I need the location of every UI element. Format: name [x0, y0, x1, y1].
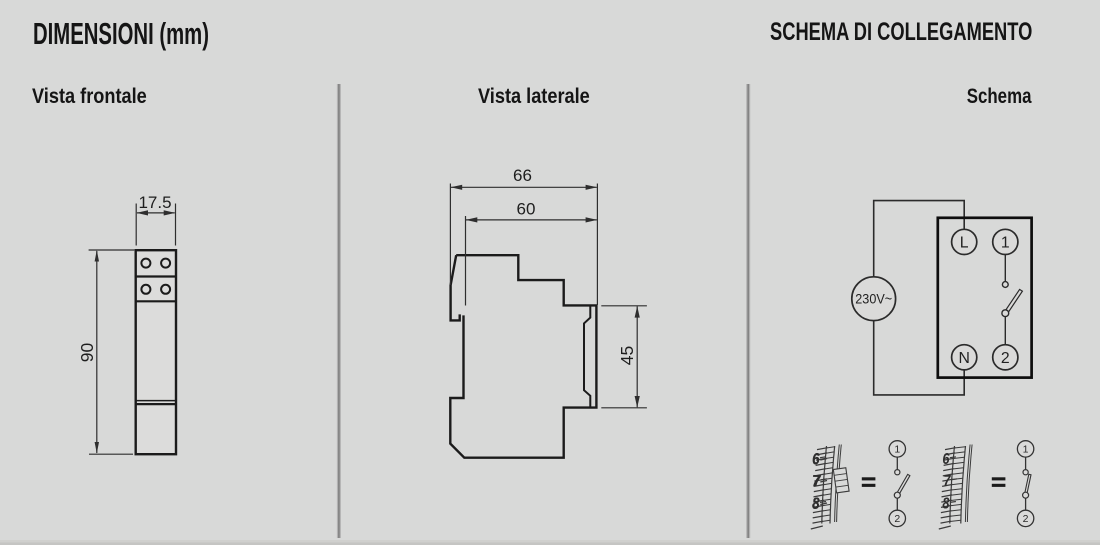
svg-text:2: 2 — [1023, 513, 1029, 525]
svg-text:1: 1 — [894, 444, 900, 456]
svg-text:7: 7 — [943, 473, 951, 490]
svg-text:1: 1 — [1023, 444, 1029, 456]
svg-text:2: 2 — [894, 513, 900, 525]
svg-text:1: 1 — [1001, 235, 1010, 252]
svg-text:60: 60 — [517, 200, 536, 219]
svg-text:N: N — [958, 350, 969, 367]
svg-text:8: 8 — [942, 495, 949, 512]
svg-text:66: 66 — [513, 166, 532, 185]
svg-text:6: 6 — [942, 451, 949, 468]
svg-text:17.5: 17.5 — [138, 193, 171, 212]
svg-text:45: 45 — [617, 346, 637, 365]
svg-text:90: 90 — [77, 343, 97, 363]
svg-text:230V~: 230V~ — [855, 292, 892, 307]
svg-text:8: 8 — [812, 495, 820, 514]
svg-text:L: L — [960, 234, 969, 251]
svg-text:7: 7 — [812, 472, 820, 491]
svg-text:2: 2 — [1001, 350, 1010, 367]
svg-text:6: 6 — [812, 450, 820, 469]
